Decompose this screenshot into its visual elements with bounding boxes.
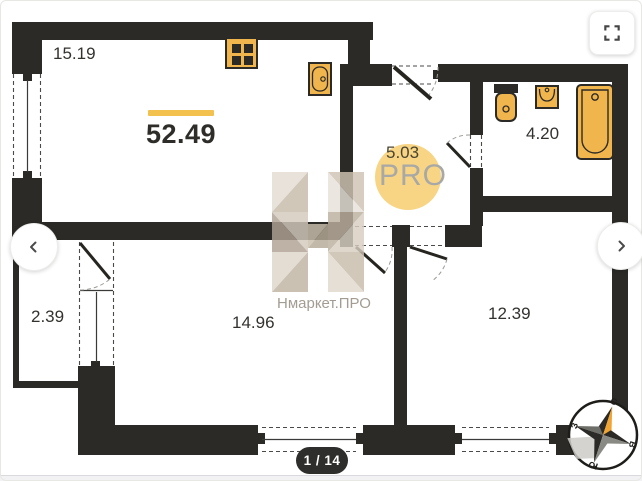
bathtub-icon bbox=[577, 85, 613, 159]
stove-icon bbox=[226, 38, 257, 68]
compass-icon: С В Ю З bbox=[558, 386, 642, 481]
pro-watermark-label: PRO bbox=[379, 159, 447, 193]
next-plan-button[interactable] bbox=[597, 222, 642, 270]
bedroom-area-label: 14.96 bbox=[232, 314, 275, 331]
total-area-highlight bbox=[148, 110, 214, 116]
page-bottom-strip bbox=[0, 475, 642, 481]
floorplan-viewer[interactable]: С В Ю З 15.19 52.49 5.03 PRO 4.20 2.39 1… bbox=[0, 0, 642, 481]
balcony-area-label: 2.39 bbox=[31, 308, 64, 325]
floorplan-drawing: С В Ю З bbox=[0, 0, 642, 481]
living-room-area-label: 12.39 bbox=[488, 305, 531, 322]
page-indicator: 1 / 14 bbox=[296, 447, 348, 474]
chevron-left-icon bbox=[25, 238, 43, 256]
kitchen-sink-icon bbox=[309, 63, 331, 95]
toilet-icon bbox=[494, 84, 518, 121]
total-area-label: 52.49 bbox=[146, 119, 216, 150]
brand-watermark-text: Нмаркет.ПРО bbox=[277, 295, 371, 312]
chevron-right-icon bbox=[612, 237, 630, 255]
fullscreen-button[interactable] bbox=[589, 11, 635, 55]
kitchen-living-area-label: 15.19 bbox=[53, 45, 96, 62]
washbasin-icon bbox=[536, 86, 558, 108]
bathroom-area-label: 4.20 bbox=[526, 125, 559, 142]
brand-logo-watermark bbox=[272, 172, 364, 292]
fullscreen-corners-icon bbox=[602, 23, 622, 43]
prev-plan-button[interactable] bbox=[10, 223, 58, 271]
